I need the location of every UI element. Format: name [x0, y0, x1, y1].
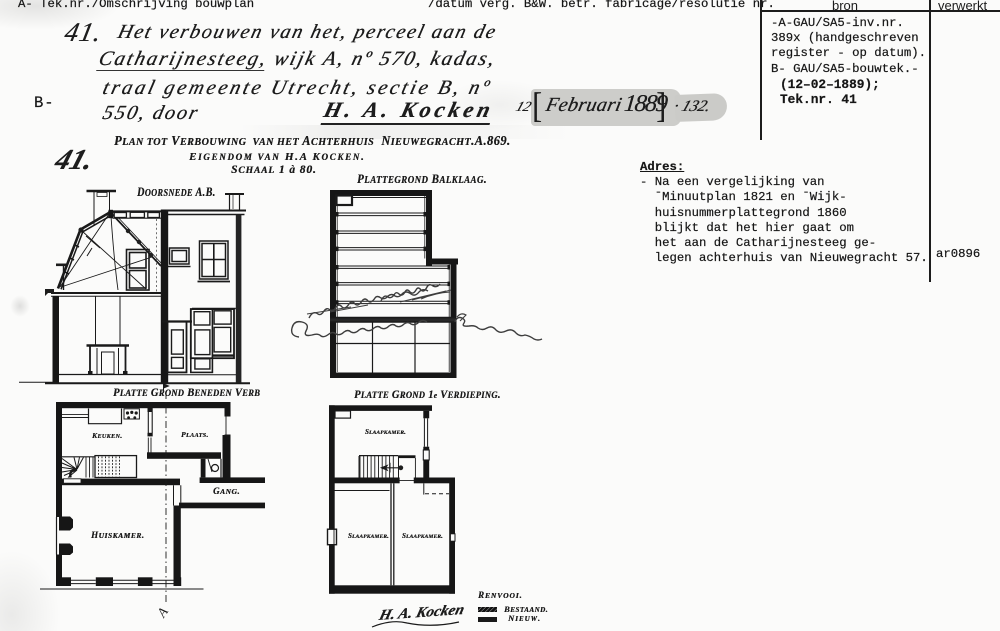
svg-text:A: A [153, 604, 171, 621]
